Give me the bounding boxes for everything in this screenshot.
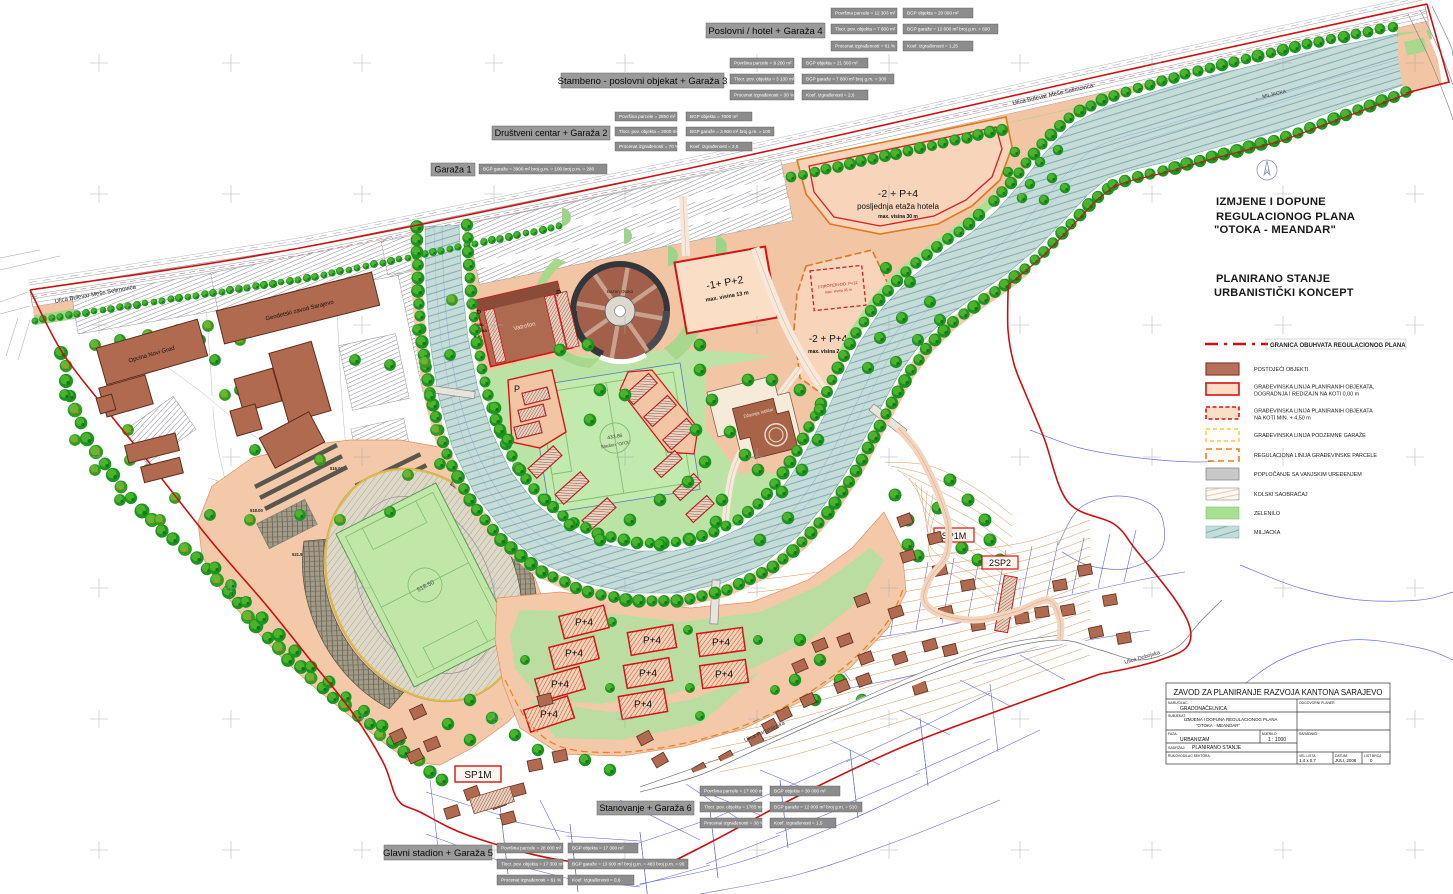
svg-text:Stambeno - poslovni objekat +: Stambeno - poslovni objekat + Garaža 3	[558, 76, 728, 87]
svg-text:BGP objekta = 21 300 m²: BGP objekta = 21 300 m²	[806, 61, 858, 66]
svg-text:SP1M: SP1M	[464, 770, 491, 781]
svg-text:MILJACKA: MILJACKA	[1254, 530, 1281, 536]
svg-text:P+4: P+4	[551, 680, 570, 691]
svg-text:URBANIZAM: URBANIZAM	[1180, 737, 1209, 743]
svg-text:Glavni stadion + Garaža 5: Glavni stadion + Garaža 5	[383, 848, 493, 859]
svg-text:KOLSKI SAOBRAĆAJ: KOLSKI SAOBRAĆAJ	[1254, 491, 1308, 498]
svg-text:Tlocr. pov. objekta = 2000 m²: Tlocr. pov. objekta = 2000 m²	[619, 129, 678, 134]
svg-text:Stanovanje + Garaža 6: Stanovanje + Garaža 6	[599, 803, 691, 813]
svg-text:GRANICA OBUHVATA REGULACIONOG: GRANICA OBUHVATA REGULACIONOG PLANA	[1270, 343, 1406, 349]
svg-text:URBANISTIČKI KONCEPT: URBANISTIČKI KONCEPT	[1214, 286, 1354, 299]
svg-text:ZAVOD ZA PLANIRANJE RAZVOJA KA: ZAVOD ZA PLANIRANJE RAZVOJA KANTONA SARA…	[1174, 688, 1383, 697]
svg-text:NARUČILAC:: NARUČILAC:	[1168, 700, 1189, 705]
svg-text:Poslovni / hotel + Garaža 4: Poslovni / hotel + Garaža 4	[708, 26, 822, 37]
svg-text:Koef. izgrađenosti = 2,5: Koef. izgrađenosti = 2,5	[690, 144, 739, 149]
svg-text:LIST BROJ: LIST BROJ	[1364, 754, 1381, 758]
svg-text:P+4: P+4	[712, 638, 731, 649]
svg-text:SADRŽAJ:: SADRŽAJ:	[1168, 745, 1185, 750]
svg-text:Procenat izgrađenosti = 38 %: Procenat izgrađenosti = 38 %	[734, 93, 794, 98]
svg-text:REGULACIONOG PLANA: REGULACIONOG PLANA	[1216, 211, 1355, 223]
svg-text:518.00: 518.00	[250, 508, 263, 513]
svg-text:Površina parcele = 9 200 m²: Površina parcele = 9 200 m²	[734, 61, 792, 66]
svg-text:Tlocr. pov. objekta = 1785 m²: Tlocr. pov. objekta = 1785 m²	[704, 805, 763, 810]
svg-text:GRADONAČELNICA: GRADONAČELNICA	[1180, 705, 1228, 712]
svg-text:BGP garaže = 12 000 m² broj g: BGP garaže = 12 000 m² broj g.m. = 510	[774, 805, 857, 810]
svg-text:Garaža 1: Garaža 1	[434, 165, 471, 175]
svg-text:Društveni centar + Garaža 2: Društveni centar + Garaža 2	[495, 128, 608, 138]
svg-text:REGULACIONA LINIJA GRAĐEVINSKE: REGULACIONA LINIJA GRAĐEVINSKE PARCELE	[1254, 453, 1377, 459]
svg-text:IZMJENE I DOPUNE: IZMJENE I DOPUNE	[1216, 196, 1326, 208]
svg-text:Tlocr. pov. objekta = 17 300 m: Tlocr. pov. objekta = 17 300 m²	[501, 862, 564, 867]
svg-text:-2 + P+4: -2 + P+4	[809, 334, 848, 345]
svg-text:BGP garaže = 3 900 m² broj g: BGP garaže = 3 900 m² broj g.m. = 100	[690, 129, 771, 134]
svg-text:BGP garaže = 12 600 m² broj: BGP garaže = 12 600 m² broj g.m. = 600	[907, 27, 990, 32]
svg-text:BGP objekta = 20 000 m²: BGP objekta = 20 000 m²	[907, 11, 959, 16]
svg-text:BGP garaže = 13 600 m² broj g: BGP garaže = 13 600 m² broj g.m. = 483 b…	[572, 862, 685, 867]
svg-text:JULI, 2008: JULI, 2008	[1335, 758, 1357, 763]
svg-text:Koef. izgrađenosti = 2,6: Koef. izgrađenosti = 2,6	[806, 93, 855, 98]
svg-text:Koef. izgrađenosti = 1,5: Koef. izgrađenosti = 1,5	[774, 821, 823, 826]
svg-text:P+4: P+4	[565, 649, 584, 660]
svg-text:GRAĐEVINSKA LINIJA PLANIRANIH: GRAĐEVINSKA LINIJA PLANIRANIH OBJEKATA,	[1254, 385, 1375, 391]
svg-text:Procenat izgrađenosti = 38 %: Procenat izgrađenosti = 38 %	[704, 821, 764, 826]
svg-text:1 : 1000: 1 : 1000	[1268, 737, 1286, 743]
svg-text:N: N	[1265, 169, 1269, 175]
svg-text:Površina parcele = 17 000 m²: Površina parcele = 17 000 m²	[704, 789, 765, 794]
svg-text:1.4 x 0.7: 1.4 x 0.7	[1299, 758, 1316, 763]
svg-text:Procenat izgrađenosti = 61 %: Procenat izgrađenosti = 61 %	[835, 44, 895, 49]
svg-text:PLANIRANO STANJE: PLANIRANO STANJE	[1192, 745, 1242, 751]
svg-text:MJERILO: MJERILO	[1262, 732, 1277, 736]
svg-text:SARADNICI: SARADNICI	[1299, 732, 1318, 736]
svg-text:P+4: P+4	[715, 670, 734, 681]
svg-text:Površina parcele = 2850 m²: Površina parcele = 2850 m²	[619, 114, 676, 119]
svg-text:GRAĐEVINSKA LINIJA PLANIRANIH: GRAĐEVINSKA LINIJA PLANIRANIH OBJEKATA	[1254, 409, 1373, 415]
svg-text:POSTOJEĆI OBJEKTI: POSTOJEĆI OBJEKTI	[1254, 366, 1308, 373]
svg-text:P+4: P+4	[634, 700, 653, 711]
svg-text:P: P	[514, 384, 520, 394]
svg-text:P+4: P+4	[639, 669, 658, 680]
svg-text:BGP objekta = 7000 m²: BGP objekta = 7000 m²	[690, 114, 738, 119]
svg-text:PLANIRANO STANJE: PLANIRANO STANJE	[1216, 273, 1330, 285]
svg-text:Koef. izgrađenosti = 1,25: Koef. izgrađenosti = 1,25	[907, 44, 958, 49]
svg-text:"OTOKA - MEANDAR": "OTOKA - MEANDAR"	[1214, 224, 1336, 236]
svg-text:BGP garaže = 7 800 m² broj g: BGP garaže = 7 800 m² broj g.m. = 300	[806, 77, 887, 82]
svg-text:POPLOČANJE SA VANJSKIM UREĐENJ: POPLOČANJE SA VANJSKIM UREĐENJEM	[1254, 471, 1362, 478]
svg-text:DOGRADNJA I REDIZAJN NA KOTI: DOGRADNJA I REDIZAJN NA KOTI 0,00 m	[1254, 392, 1360, 398]
svg-text:BGP garaže = 3900 m² broj g: BGP garaže = 3900 m² broj g.m. = 100 bro…	[483, 167, 595, 172]
svg-text:Tlocr. pov. objekta = 7 600 m²: Tlocr. pov. objekta = 7 600 m²	[835, 27, 896, 32]
svg-text:ZELENILO: ZELENILO	[1254, 511, 1280, 517]
svg-text:GRAĐEVINSKA LINIJA PODZEMNE GA: GRAĐEVINSKA LINIJA PODZEMNE GARAŽE	[1254, 431, 1366, 439]
svg-text:IZMJENA I DOPUNA REGULACIONOG: IZMJENA I DOPUNA REGULACIONOG PLANA	[1184, 717, 1278, 722]
svg-text:P: P	[556, 289, 561, 298]
svg-text:Koef. izgrađenosti = 0,6: Koef. izgrađenosti = 0,6	[572, 878, 621, 883]
svg-text:P+4: P+4	[540, 710, 559, 721]
svg-text:Procenat izgrađenosti = 61 %: Procenat izgrađenosti = 61 %	[501, 878, 561, 883]
svg-text:2SP2: 2SP2	[989, 558, 1011, 568]
svg-text:P+4: P+4	[575, 618, 594, 629]
svg-text:posljednja etaža hotela: posljednja etaža hotela	[857, 202, 939, 211]
svg-text:Bazen Otoka: Bazen Otoka	[607, 289, 634, 294]
svg-text:BGP objekta = 30 000 m²: BGP objekta = 30 000 m²	[774, 789, 826, 794]
svg-text:max. visina 30 m: max. visina 30 m	[878, 214, 918, 220]
svg-text:Površina parcele = 28 000 m²: Površina parcele = 28 000 m²	[501, 846, 562, 851]
svg-text:Procenat izgrađenosti = 70 %: Procenat izgrađenosti = 70 %	[619, 144, 679, 149]
svg-text:P+4: P+4	[643, 636, 662, 647]
svg-text:RUKOVODILAC SEKTORA:: RUKOVODILAC SEKTORA:	[1168, 754, 1211, 758]
svg-text:Tlocr. pov. objekta = 3 130 m²: Tlocr. pov. objekta = 3 130 m²	[734, 77, 795, 82]
svg-text:FAZA:: FAZA:	[1168, 732, 1177, 736]
svg-text:BGP objekta = 17 300 m²: BGP objekta = 17 300 m²	[572, 846, 624, 851]
svg-text:ODGOVORNI PLANER: ODGOVORNI PLANER	[1299, 701, 1335, 705]
svg-text:Površina parcele = 12 303 m²: Površina parcele = 12 303 m²	[835, 11, 896, 16]
svg-text:NA KOTI MIN. + 4,50 m: NA KOTI MIN. + 4,50 m	[1254, 416, 1311, 422]
svg-text:"OTOKA - MEANDAR": "OTOKA - MEANDAR"	[1196, 723, 1240, 728]
